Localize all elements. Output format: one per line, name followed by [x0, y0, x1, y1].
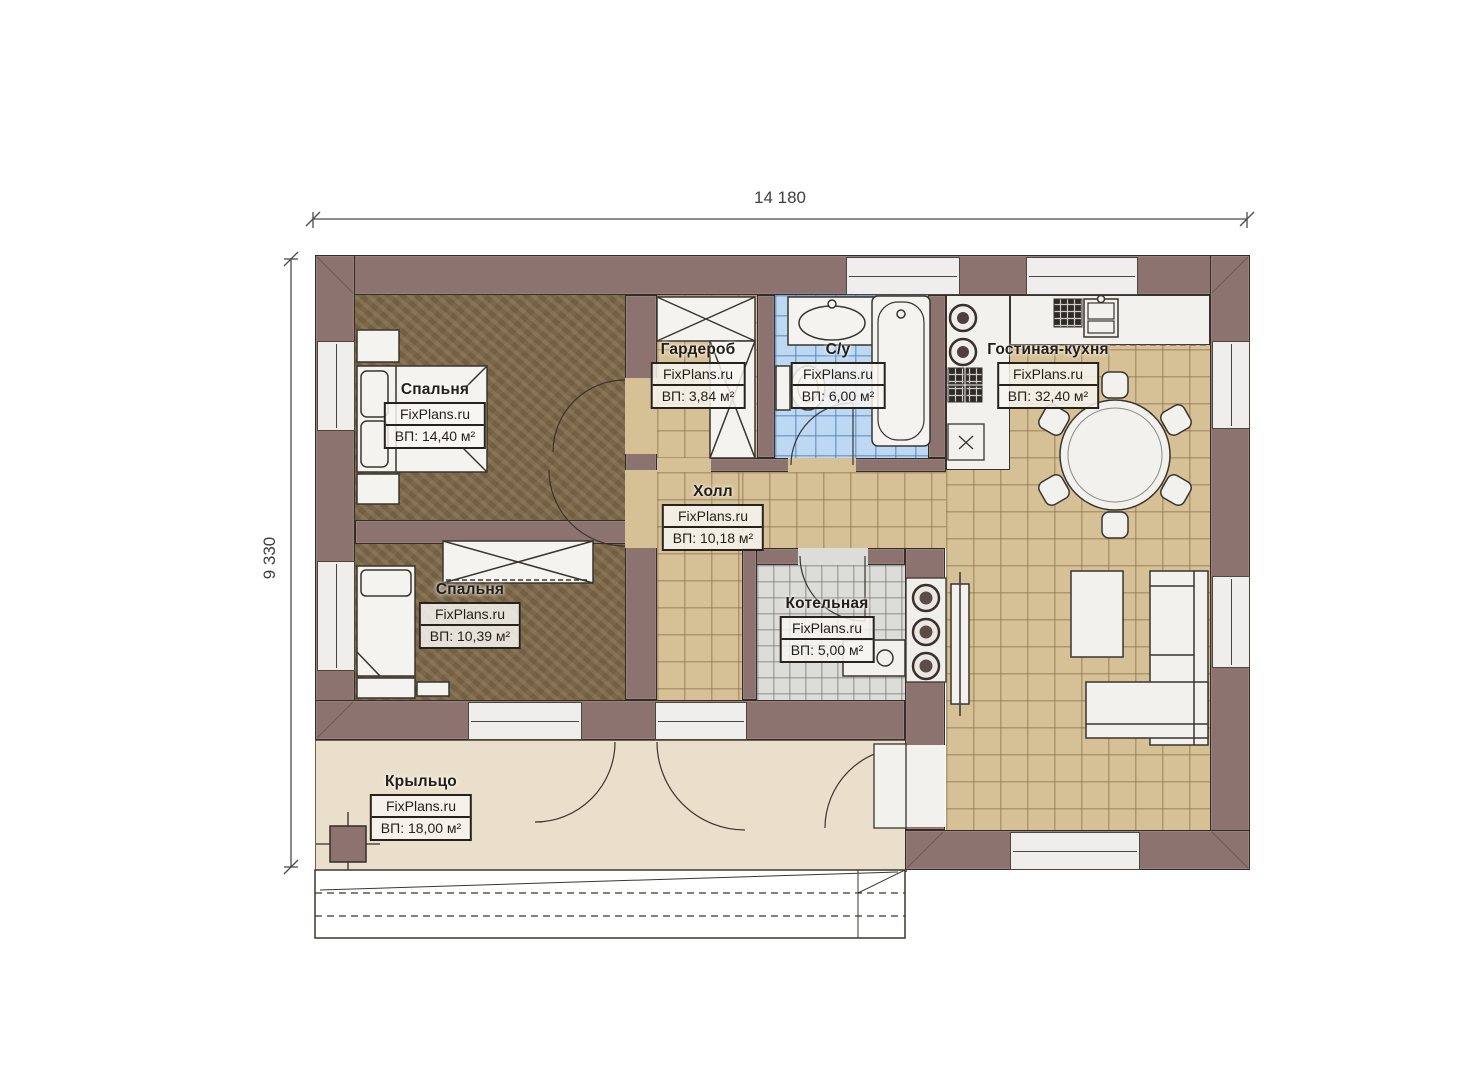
- wall-boiler-left: [742, 548, 757, 700]
- room-label-living-kitchen: Гостиная-кухня FixPlans.ru ВП: 32,40 м²: [987, 341, 1109, 409]
- room-brand: FixPlans.ru: [793, 364, 884, 386]
- room-brand: FixPlans.ru: [386, 404, 484, 426]
- wall-bottom-left: [315, 700, 905, 740]
- room-info-box: FixPlans.ru ВП: 10,39 м²: [419, 602, 521, 649]
- window-right-2: [1212, 576, 1250, 668]
- window-bottom-living: [1010, 832, 1140, 870]
- room-label-bedroom-2: Спальня FixPlans.ru ВП: 10,39 м²: [419, 581, 521, 649]
- room-area: ВП: 32,40 м²: [999, 386, 1097, 406]
- room-area: ВП: 10,39 м²: [421, 626, 519, 646]
- hall-floor-right: [742, 472, 946, 548]
- room-label-porch: Крыльцо FixPlans.ru ВП: 18,00 м²: [370, 773, 472, 841]
- bathroom-door-opening: [788, 458, 856, 472]
- entrance-steps: [315, 870, 905, 938]
- entrance-door-opening: [905, 745, 945, 827]
- dimension-height: 9 330: [260, 518, 280, 598]
- wall-wardrobe-bathroom: [757, 295, 775, 458]
- wall-bathroom-kitchen: [928, 295, 946, 458]
- room-brand: FixPlans.ru: [372, 796, 470, 818]
- room-area: ВП: 18,00 м²: [372, 818, 470, 838]
- room-brand: FixPlans.ru: [999, 364, 1097, 386]
- door-bedroom-2-porch: [468, 702, 582, 740]
- kitchen-counter-top: [1010, 295, 1210, 345]
- room-name: Спальня: [419, 581, 521, 599]
- room-brand: FixPlans.ru: [782, 618, 873, 640]
- room-label-boiler: Котельная FixPlans.ru ВП: 5,00 м²: [780, 595, 875, 663]
- room-brand: FixPlans.ru: [653, 364, 744, 386]
- room-name: Котельная: [780, 595, 875, 613]
- room-area: ВП: 5,00 м²: [782, 640, 873, 660]
- room-name: Крыльцо: [370, 773, 472, 791]
- room-info-box: FixPlans.ru ВП: 32,40 м²: [997, 362, 1099, 409]
- room-name: С/у: [791, 341, 886, 359]
- room-name: Холл: [662, 483, 764, 501]
- room-info-box: FixPlans.ru ВП: 3,84 м²: [651, 362, 746, 409]
- floor-plan: 14 180 9 330 Спальня FixPlans.ru ВП: 14,…: [0, 0, 1473, 1080]
- room-brand: FixPlans.ru: [664, 506, 762, 528]
- room-info-box: FixPlans.ru ВП: 6,00 м²: [791, 362, 886, 409]
- room-name: Гостиная-кухня: [987, 341, 1109, 359]
- boiler-door-opening: [798, 548, 868, 565]
- room-label-bedroom-1: Спальня FixPlans.ru ВП: 14,40 м²: [384, 381, 486, 449]
- room-label-bathroom: С/у FixPlans.ru ВП: 6,00 м²: [791, 341, 886, 409]
- room-info-box: FixPlans.ru ВП: 5,00 м²: [780, 616, 875, 663]
- room-area: ВП: 14,40 м²: [386, 426, 484, 446]
- room-name: Спальня: [384, 381, 486, 399]
- room-label-hall: Холл FixPlans.ru ВП: 10,18 м²: [662, 483, 764, 551]
- room-area: ВП: 6,00 м²: [793, 386, 884, 406]
- room-name: Гардероб: [651, 341, 746, 359]
- room-info-box: FixPlans.ru ВП: 14,40 м²: [384, 402, 486, 449]
- dimension-width: 14 180: [313, 188, 1247, 208]
- wardrobe-door-opening: [657, 458, 711, 472]
- window-bedroom-2: [317, 561, 355, 671]
- room-area: ВП: 10,18 м²: [664, 528, 762, 548]
- window-top-2: [1026, 257, 1138, 295]
- window-bedroom-1: [317, 341, 355, 431]
- room-brand: FixPlans.ru: [421, 604, 519, 626]
- room-label-wardrobe: Гардероб FixPlans.ru ВП: 3,84 м²: [651, 341, 746, 409]
- bedroom-2-door-opening: [625, 470, 657, 548]
- door-hall-porch: [655, 702, 747, 740]
- room-info-box: FixPlans.ru ВП: 18,00 м²: [370, 794, 472, 841]
- window-top-1: [846, 257, 960, 295]
- room-info-box: FixPlans.ru ВП: 10,18 м²: [662, 504, 764, 551]
- window-right-1: [1212, 341, 1250, 429]
- room-area: ВП: 3,84 м²: [653, 386, 744, 406]
- wall-between-bedrooms: [355, 520, 627, 544]
